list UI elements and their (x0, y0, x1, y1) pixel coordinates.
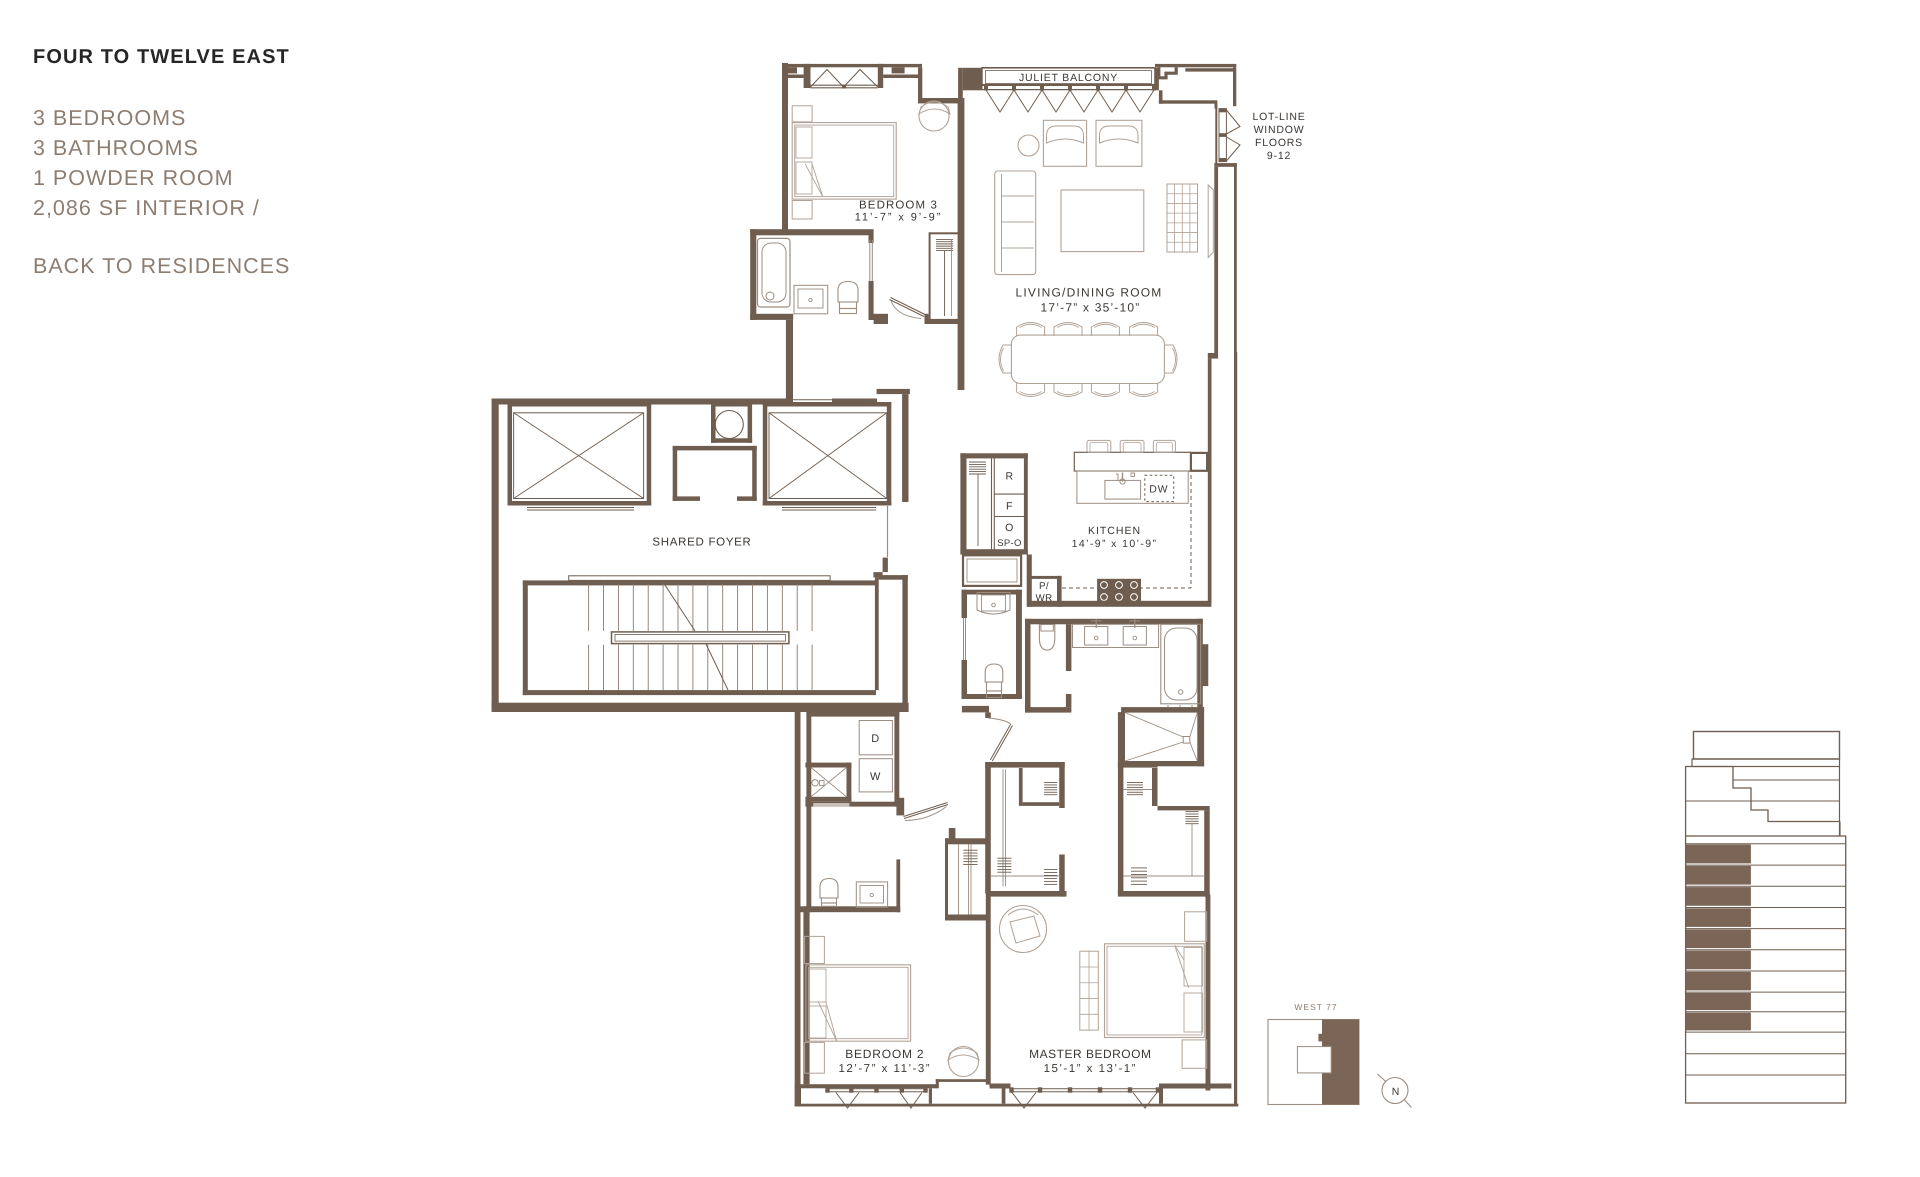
svg-text:LIVING/DINING ROOM: LIVING/DINING ROOM (1016, 286, 1163, 300)
svg-text:BEDROOM 2: BEDROOM 2 (845, 1047, 924, 1061)
svg-text:WR: WR (1035, 593, 1052, 604)
svg-text:WINDOW: WINDOW (1254, 124, 1305, 136)
svg-text:JULIET BALCONY: JULIET BALCONY (1019, 72, 1118, 84)
svg-text:BEDROOM 3: BEDROOM 3 (859, 200, 938, 212)
svg-text:FOUR TO TWELVE EAST: FOUR TO TWELVE EAST (33, 46, 290, 68)
svg-text:LOT-LINE: LOT-LINE (1252, 111, 1305, 123)
svg-text:N: N (1392, 1086, 1400, 1098)
svg-text:DW: DW (1149, 484, 1168, 496)
svg-text:O: O (1005, 522, 1014, 534)
svg-text:3 BEDROOMS: 3 BEDROOMS (33, 106, 186, 130)
svg-text:KITCHEN: KITCHEN (1088, 525, 1141, 537)
svg-text:FLOORS: FLOORS (1255, 137, 1303, 149)
svg-text:9-12: 9-12 (1267, 150, 1291, 162)
svg-text:P/: P/ (1039, 581, 1049, 592)
svg-text:WEST 77: WEST 77 (1294, 1002, 1337, 1012)
svg-text:R: R (1005, 471, 1013, 483)
svg-text:1 POWDER ROOM: 1 POWDER ROOM (33, 166, 234, 190)
svg-text:3 BATHROOMS: 3 BATHROOMS (33, 136, 199, 160)
svg-text:15’-1” x 13’-1”: 15’-1” x 13’-1” (1044, 1063, 1137, 1075)
svg-text:W: W (870, 771, 881, 783)
svg-text:17’-7” x 35’-10”: 17’-7” x 35’-10” (1041, 300, 1141, 314)
svg-text:14’-9” x 10’-9”: 14’-9” x 10’-9” (1072, 538, 1158, 550)
svg-text:D: D (871, 733, 879, 745)
svg-text:BACK TO RESIDENCES: BACK TO RESIDENCES (33, 254, 290, 278)
svg-text:11’-7” x 9’-9”: 11’-7” x 9’-9” (855, 212, 943, 224)
svg-text:F: F (1006, 501, 1013, 513)
svg-text:SP-O: SP-O (997, 538, 1021, 549)
svg-text:MASTER BEDROOM: MASTER BEDROOM (1029, 1047, 1151, 1061)
svg-text:2,086 SF INTERIOR /: 2,086 SF INTERIOR / (33, 196, 260, 220)
svg-text:12’-7” x 11’-3”: 12’-7” x 11’-3” (839, 1063, 932, 1075)
svg-text:SHARED FOYER: SHARED FOYER (652, 537, 751, 549)
